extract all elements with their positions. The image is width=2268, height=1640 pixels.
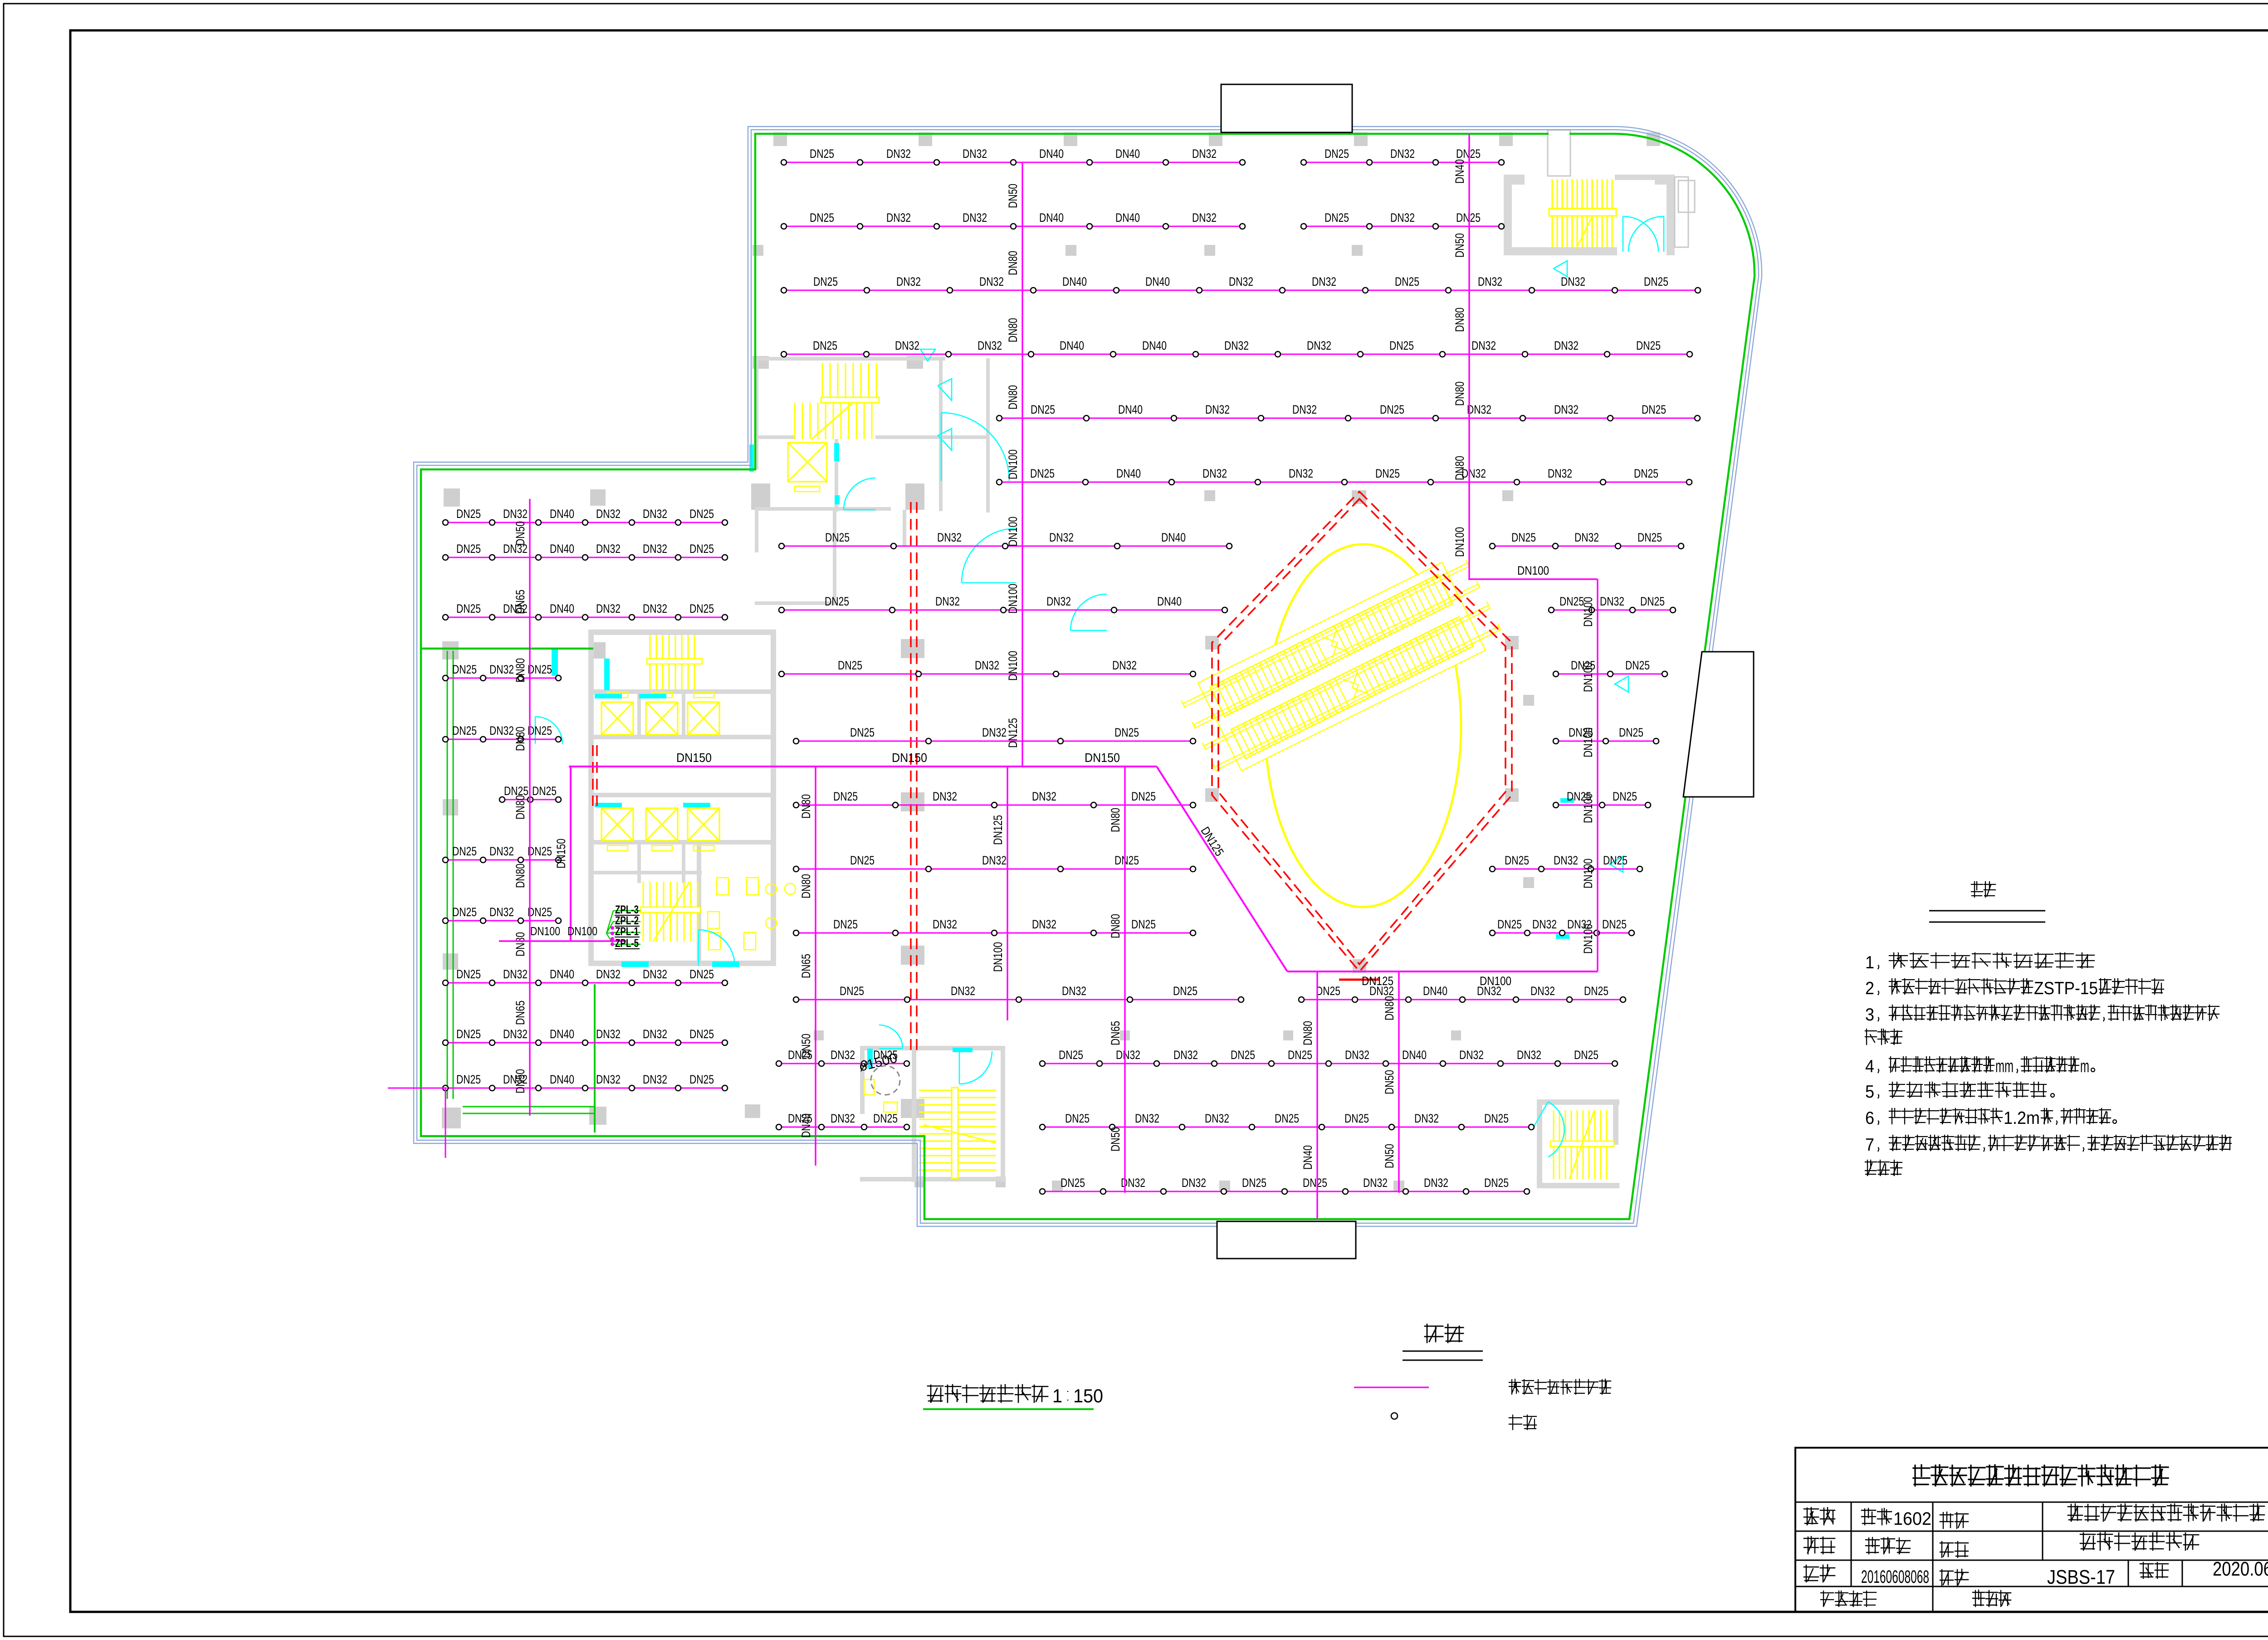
svg-text:DN32: DN32 <box>1032 790 1056 803</box>
svg-text:DN32: DN32 <box>596 542 621 556</box>
svg-text:DN25: DN25 <box>1288 1048 1312 1062</box>
svg-text:DN32: DN32 <box>895 339 919 352</box>
svg-text:DN80: DN80 <box>513 658 527 683</box>
svg-text:DN100: DN100 <box>1517 564 1549 577</box>
svg-text:DN40: DN40 <box>550 1027 574 1041</box>
svg-text:DN40: DN40 <box>799 1113 813 1138</box>
svg-text:DN25: DN25 <box>1316 984 1340 998</box>
svg-text:DN40: DN40 <box>1157 595 1182 608</box>
svg-text:DN40: DN40 <box>1062 275 1087 288</box>
svg-text:DN25: DN25 <box>813 275 838 288</box>
svg-text:DN25: DN25 <box>1559 595 1584 608</box>
svg-text:DN25: DN25 <box>1375 467 1400 480</box>
svg-text:DN25: DN25 <box>825 595 849 608</box>
svg-text:DN50: DN50 <box>513 1069 527 1093</box>
svg-text:DN40: DN40 <box>1118 403 1143 416</box>
svg-text:DN25: DN25 <box>528 905 552 919</box>
svg-text:DN32: DN32 <box>596 507 621 521</box>
svg-text:DN25: DN25 <box>1634 467 1658 480</box>
svg-text:DN32: DN32 <box>1478 275 1502 288</box>
svg-text:DN32: DN32 <box>489 844 514 858</box>
svg-text:DN25: DN25 <box>1505 854 1529 867</box>
svg-text:DN32: DN32 <box>643 602 667 615</box>
svg-text:DN25: DN25 <box>1173 984 1198 998</box>
svg-text:DN25: DN25 <box>689 1073 714 1086</box>
svg-text:DN32: DN32 <box>1390 147 1415 161</box>
svg-text:DN32: DN32 <box>596 1027 621 1041</box>
svg-text:DN32: DN32 <box>831 1048 855 1062</box>
svg-text:DN40: DN40 <box>1402 1048 1427 1062</box>
svg-text:DN25: DN25 <box>810 211 834 225</box>
svg-text:DN32: DN32 <box>1292 403 1317 416</box>
svg-text:DN25: DN25 <box>1059 1048 1083 1062</box>
svg-text:JSBS-17: JSBS-17 <box>2047 1566 2115 1588</box>
svg-text:DN25: DN25 <box>452 663 477 676</box>
svg-text:DN32: DN32 <box>935 595 960 608</box>
svg-text:DN32: DN32 <box>1459 1048 1484 1062</box>
svg-text:DN25: DN25 <box>1131 918 1156 931</box>
svg-text:DN32: DN32 <box>1205 1112 1229 1125</box>
svg-text:2020.06: 2020.06 <box>2213 1558 2268 1580</box>
svg-text:DN32: DN32 <box>1600 595 1624 608</box>
svg-text:DN100: DN100 <box>1006 517 1020 547</box>
svg-text:DN80: DN80 <box>1453 456 1466 480</box>
svg-text:DN32: DN32 <box>963 211 987 225</box>
svg-text:ZPL-1: ZPL-1 <box>615 925 639 938</box>
svg-text:DN25: DN25 <box>1325 211 1349 225</box>
svg-text:DN32: DN32 <box>1554 339 1579 352</box>
svg-text:DN40: DN40 <box>1301 1145 1315 1170</box>
svg-text:DN80: DN80 <box>1006 385 1020 410</box>
svg-text:DN25: DN25 <box>840 984 864 998</box>
svg-text:DN25: DN25 <box>1619 726 1643 739</box>
svg-text:DN25: DN25 <box>850 854 875 867</box>
svg-text:DN32: DN32 <box>643 1073 667 1086</box>
svg-text:DN125: DN125 <box>1006 718 1020 748</box>
svg-text:DN32: DN32 <box>951 984 975 998</box>
svg-text:DN32: DN32 <box>1574 531 1599 544</box>
svg-text:DN32: DN32 <box>979 275 1004 288</box>
svg-text:DN100: DN100 <box>1581 859 1595 888</box>
svg-text:DN25: DN25 <box>456 542 481 556</box>
svg-text:DN25: DN25 <box>1584 984 1608 998</box>
svg-text:DN50: DN50 <box>1383 1070 1396 1094</box>
svg-text:DN100: DN100 <box>991 942 1005 972</box>
svg-text:DN32: DN32 <box>1532 918 1557 931</box>
svg-text:DN32: DN32 <box>596 1073 621 1086</box>
svg-text:DN40: DN40 <box>1423 984 1447 998</box>
svg-text:DN100: DN100 <box>1453 527 1466 557</box>
svg-text:DN25: DN25 <box>1637 531 1662 544</box>
svg-text:DN32: DN32 <box>1229 275 1253 288</box>
svg-text:DN32: DN32 <box>489 905 514 919</box>
svg-text:ZPL-5: ZPL-5 <box>615 937 639 950</box>
svg-text:DN32: DN32 <box>489 663 514 676</box>
svg-text:DN40: DN40 <box>1060 339 1084 352</box>
svg-text:DN50: DN50 <box>1006 184 1020 208</box>
svg-text:DN25: DN25 <box>689 602 714 615</box>
svg-text:DN25: DN25 <box>689 507 714 521</box>
svg-text:6: 6 <box>1865 1108 1874 1128</box>
svg-text:DN32: DN32 <box>596 602 621 615</box>
svg-text:DN25: DN25 <box>1497 918 1522 931</box>
svg-text:DN25: DN25 <box>1484 1112 1509 1125</box>
svg-text:DN25: DN25 <box>452 844 477 858</box>
svg-text:DN80: DN80 <box>513 932 527 957</box>
svg-text:DN40: DN40 <box>550 542 574 556</box>
svg-text:DN32: DN32 <box>1192 147 1217 161</box>
svg-text:DN32: DN32 <box>1471 339 1496 352</box>
svg-text:DN32: DN32 <box>1192 211 1217 225</box>
svg-text:DN32: DN32 <box>886 147 911 161</box>
svg-text:DN25: DN25 <box>833 790 858 803</box>
svg-text:DN25: DN25 <box>689 542 714 556</box>
svg-text:7: 7 <box>1865 1135 1874 1155</box>
svg-text:DN32: DN32 <box>1135 1112 1159 1125</box>
svg-text:DN32: DN32 <box>1548 467 1572 480</box>
svg-text:DN25: DN25 <box>452 905 477 919</box>
svg-text:DN32: DN32 <box>975 659 999 672</box>
svg-text:DN25: DN25 <box>1031 403 1055 416</box>
svg-text:m: m <box>2080 1057 2089 1076</box>
svg-text:DN25: DN25 <box>532 784 557 798</box>
svg-text:5: 5 <box>1865 1082 1874 1102</box>
svg-text:DN32: DN32 <box>643 967 667 981</box>
svg-text:DN25: DN25 <box>1344 1112 1369 1125</box>
svg-text:DN32: DN32 <box>596 967 621 981</box>
svg-text:DN40: DN40 <box>550 602 574 615</box>
svg-text:DN25: DN25 <box>1114 854 1139 867</box>
svg-text:DN40: DN40 <box>550 967 574 981</box>
svg-text:DN40: DN40 <box>1115 147 1140 161</box>
svg-text:DN80: DN80 <box>513 727 527 751</box>
svg-text:DN80: DN80 <box>1453 307 1466 332</box>
svg-text:DN25: DN25 <box>833 918 858 931</box>
svg-text:DN25: DN25 <box>1380 403 1404 416</box>
svg-text:DN25: DN25 <box>456 1027 481 1041</box>
svg-text:DN80: DN80 <box>799 874 813 898</box>
svg-text:DN32: DN32 <box>831 1112 855 1125</box>
svg-text:DN25: DN25 <box>1574 1048 1598 1062</box>
svg-text:DN25: DN25 <box>689 1027 714 1041</box>
svg-text:DN25: DN25 <box>1603 854 1628 867</box>
svg-text:1: 1 <box>1865 953 1874 972</box>
svg-text:DN50: DN50 <box>513 521 527 546</box>
svg-text:DN32: DN32 <box>1289 467 1313 480</box>
svg-text:DN25: DN25 <box>528 724 552 737</box>
svg-text:DN32: DN32 <box>1049 531 1074 544</box>
svg-text:DN32: DN32 <box>643 1027 667 1041</box>
svg-text:DN32: DN32 <box>937 531 962 544</box>
svg-text:DN32: DN32 <box>1112 659 1137 672</box>
svg-text:DN40: DN40 <box>1142 339 1167 352</box>
svg-text:DN25: DN25 <box>1642 403 1666 416</box>
svg-text:DN25: DN25 <box>1636 339 1661 352</box>
svg-text:DN40: DN40 <box>1039 147 1064 161</box>
svg-text:DN32: DN32 <box>982 726 1007 739</box>
svg-text:DN65: DN65 <box>513 590 527 614</box>
svg-text:DN80: DN80 <box>1453 381 1466 406</box>
svg-text:1602: 1602 <box>1893 1509 1931 1529</box>
svg-text:DN50: DN50 <box>1453 233 1466 258</box>
svg-text:DN32: DN32 <box>1046 595 1071 608</box>
svg-text:DN25: DN25 <box>873 1112 898 1125</box>
svg-text:DN100: DN100 <box>1581 793 1595 823</box>
svg-text:DN32: DN32 <box>1414 1112 1439 1125</box>
svg-text:DN32: DN32 <box>1390 211 1415 225</box>
svg-text:DN25: DN25 <box>1644 275 1668 288</box>
svg-text:DN32: DN32 <box>1554 854 1578 867</box>
svg-text:DN40: DN40 <box>1145 275 1170 288</box>
svg-text:DN25: DN25 <box>1303 1176 1327 1190</box>
svg-text:DN80: DN80 <box>1109 914 1122 938</box>
svg-text:ZSTP-15: ZSTP-15 <box>2034 979 2098 998</box>
svg-text:DN25: DN25 <box>1231 1048 1255 1062</box>
svg-text:DN25: DN25 <box>456 1073 481 1086</box>
svg-text:DN25: DN25 <box>456 507 481 521</box>
svg-text:DN25: DN25 <box>1511 531 1536 544</box>
svg-text:DN100: DN100 <box>530 924 560 938</box>
svg-text:DN32: DN32 <box>1561 275 1585 288</box>
svg-text:DN80: DN80 <box>1006 318 1020 342</box>
svg-text:DN40: DN40 <box>1116 467 1141 480</box>
svg-text:DN32: DN32 <box>1202 467 1227 480</box>
svg-text:DN40: DN40 <box>1115 211 1140 225</box>
svg-text:DN100: DN100 <box>1581 924 1595 954</box>
svg-text:DN32: DN32 <box>1424 1176 1448 1190</box>
svg-text:DN32: DN32 <box>1032 918 1056 931</box>
svg-text:DN40: DN40 <box>1453 159 1466 184</box>
svg-text:DN25: DN25 <box>1275 1112 1299 1125</box>
svg-text:DN25: DN25 <box>1395 275 1419 288</box>
svg-text:DN25: DN25 <box>1456 147 1481 161</box>
svg-text:DN32: DN32 <box>963 147 987 161</box>
svg-text:DN25: DN25 <box>1131 790 1156 803</box>
svg-text:DN25: DN25 <box>1640 595 1665 608</box>
svg-text:DN32: DN32 <box>982 854 1007 867</box>
svg-text:DN25: DN25 <box>850 726 875 739</box>
svg-text:DN25: DN25 <box>1114 726 1139 739</box>
svg-text:DN100: DN100 <box>1006 449 1020 479</box>
svg-text:DN32: DN32 <box>489 724 514 737</box>
svg-text:150: 150 <box>1073 1385 1103 1406</box>
svg-text:DN25: DN25 <box>452 724 477 737</box>
svg-text:DN80: DN80 <box>799 794 813 819</box>
svg-text:DN80: DN80 <box>1006 251 1020 275</box>
svg-text:DN25: DN25 <box>456 967 481 981</box>
svg-text:DN50: DN50 <box>799 1034 813 1058</box>
svg-text:DN32: DN32 <box>1517 1048 1541 1062</box>
svg-text:DN150: DN150 <box>892 751 927 765</box>
svg-text:DN25: DN25 <box>1389 339 1414 352</box>
svg-text:DN32: DN32 <box>978 339 1002 352</box>
svg-text:DN65: DN65 <box>1109 1021 1122 1045</box>
svg-text:DN50: DN50 <box>1109 1127 1122 1152</box>
svg-text:DN32: DN32 <box>503 967 528 981</box>
svg-text:20160608068: 20160608068 <box>1861 1567 1929 1587</box>
svg-text:DN32: DN32 <box>1530 984 1555 998</box>
svg-text:DN40: DN40 <box>550 507 574 521</box>
svg-text:DN25: DN25 <box>1602 918 1627 931</box>
svg-text:DN32: DN32 <box>503 507 528 521</box>
svg-text:DN32: DN32 <box>1205 403 1230 416</box>
svg-text:DN80: DN80 <box>1109 808 1122 832</box>
svg-text:DN100: DN100 <box>1006 651 1020 681</box>
svg-text:4: 4 <box>1865 1057 1874 1076</box>
svg-text:DN50: DN50 <box>1383 1144 1396 1168</box>
svg-text:DN25: DN25 <box>528 663 552 676</box>
svg-text:DN32: DN32 <box>1363 1176 1388 1190</box>
svg-text:DN100: DN100 <box>1581 727 1595 757</box>
svg-text:DN32: DN32 <box>933 918 957 931</box>
svg-text:DN32: DN32 <box>503 1027 528 1041</box>
svg-text:DN65: DN65 <box>513 1001 527 1025</box>
svg-text:DN100: DN100 <box>1006 584 1020 614</box>
svg-text:DN25: DN25 <box>1030 467 1055 480</box>
svg-text:DN100: DN100 <box>1581 662 1595 692</box>
svg-text:DN80: DN80 <box>1383 996 1396 1020</box>
svg-text:DN80: DN80 <box>1301 1021 1315 1045</box>
svg-text:DN40: DN40 <box>1039 211 1064 225</box>
svg-text:DN25: DN25 <box>813 339 837 352</box>
svg-text:DN80: DN80 <box>513 795 527 820</box>
svg-text:DN25: DN25 <box>1325 147 1349 161</box>
svg-text:DN25: DN25 <box>1242 1176 1266 1190</box>
svg-text:DN32: DN32 <box>1554 403 1579 416</box>
svg-text:DN32: DN32 <box>1224 339 1249 352</box>
svg-text:DN25: DN25 <box>1484 1176 1509 1190</box>
svg-text:mm: mm <box>1995 1057 2014 1076</box>
svg-text:DN32: DN32 <box>933 790 957 803</box>
svg-text:DN25: DN25 <box>1613 790 1637 803</box>
svg-text:DN25: DN25 <box>528 844 552 858</box>
svg-text:DN40: DN40 <box>1161 531 1186 544</box>
svg-text:DN32: DN32 <box>1173 1048 1198 1062</box>
svg-text:DN32: DN32 <box>643 542 667 556</box>
svg-text:DN150: DN150 <box>1085 751 1120 765</box>
svg-text:DN25: DN25 <box>838 659 862 672</box>
svg-text:DN32: DN32 <box>1182 1176 1206 1190</box>
svg-text:DN40: DN40 <box>550 1073 574 1086</box>
svg-text:1.2m: 1.2m <box>2004 1108 2040 1128</box>
svg-text:DN100: DN100 <box>567 924 597 938</box>
svg-text:DN125: DN125 <box>991 815 1005 845</box>
svg-text:DN25: DN25 <box>825 531 850 544</box>
svg-text:DN32: DN32 <box>1116 1048 1140 1062</box>
svg-text:DN100: DN100 <box>1480 974 1511 988</box>
svg-text:DN32: DN32 <box>1312 275 1336 288</box>
svg-text:3: 3 <box>1865 1005 1874 1025</box>
svg-text:DN25: DN25 <box>689 967 714 981</box>
svg-text:DN32: DN32 <box>1307 339 1331 352</box>
svg-text:DN25: DN25 <box>456 602 481 615</box>
svg-text:DN25: DN25 <box>1625 659 1650 672</box>
svg-text:DN25: DN25 <box>1065 1112 1090 1125</box>
svg-text:DN150: DN150 <box>554 839 568 869</box>
svg-text:DN150: DN150 <box>676 751 712 765</box>
svg-text:DN32: DN32 <box>886 211 911 225</box>
svg-text:DN32: DN32 <box>1345 1048 1369 1062</box>
svg-text:DN125: DN125 <box>1362 974 1393 988</box>
svg-text:DN32: DN32 <box>1062 984 1086 998</box>
svg-text:2: 2 <box>1865 979 1874 998</box>
svg-text:DN100: DN100 <box>1581 597 1595 627</box>
svg-text:1: 1 <box>1052 1385 1062 1406</box>
svg-text:DN25: DN25 <box>1456 211 1481 225</box>
svg-text:DN65: DN65 <box>799 954 813 978</box>
svg-text:DN32: DN32 <box>896 275 921 288</box>
svg-text:DN25: DN25 <box>1061 1176 1085 1190</box>
svg-text:DN32: DN32 <box>643 507 667 521</box>
svg-text:DN32: DN32 <box>1467 403 1491 416</box>
svg-text:DN25: DN25 <box>810 147 834 161</box>
svg-text:DN80: DN80 <box>513 864 527 888</box>
